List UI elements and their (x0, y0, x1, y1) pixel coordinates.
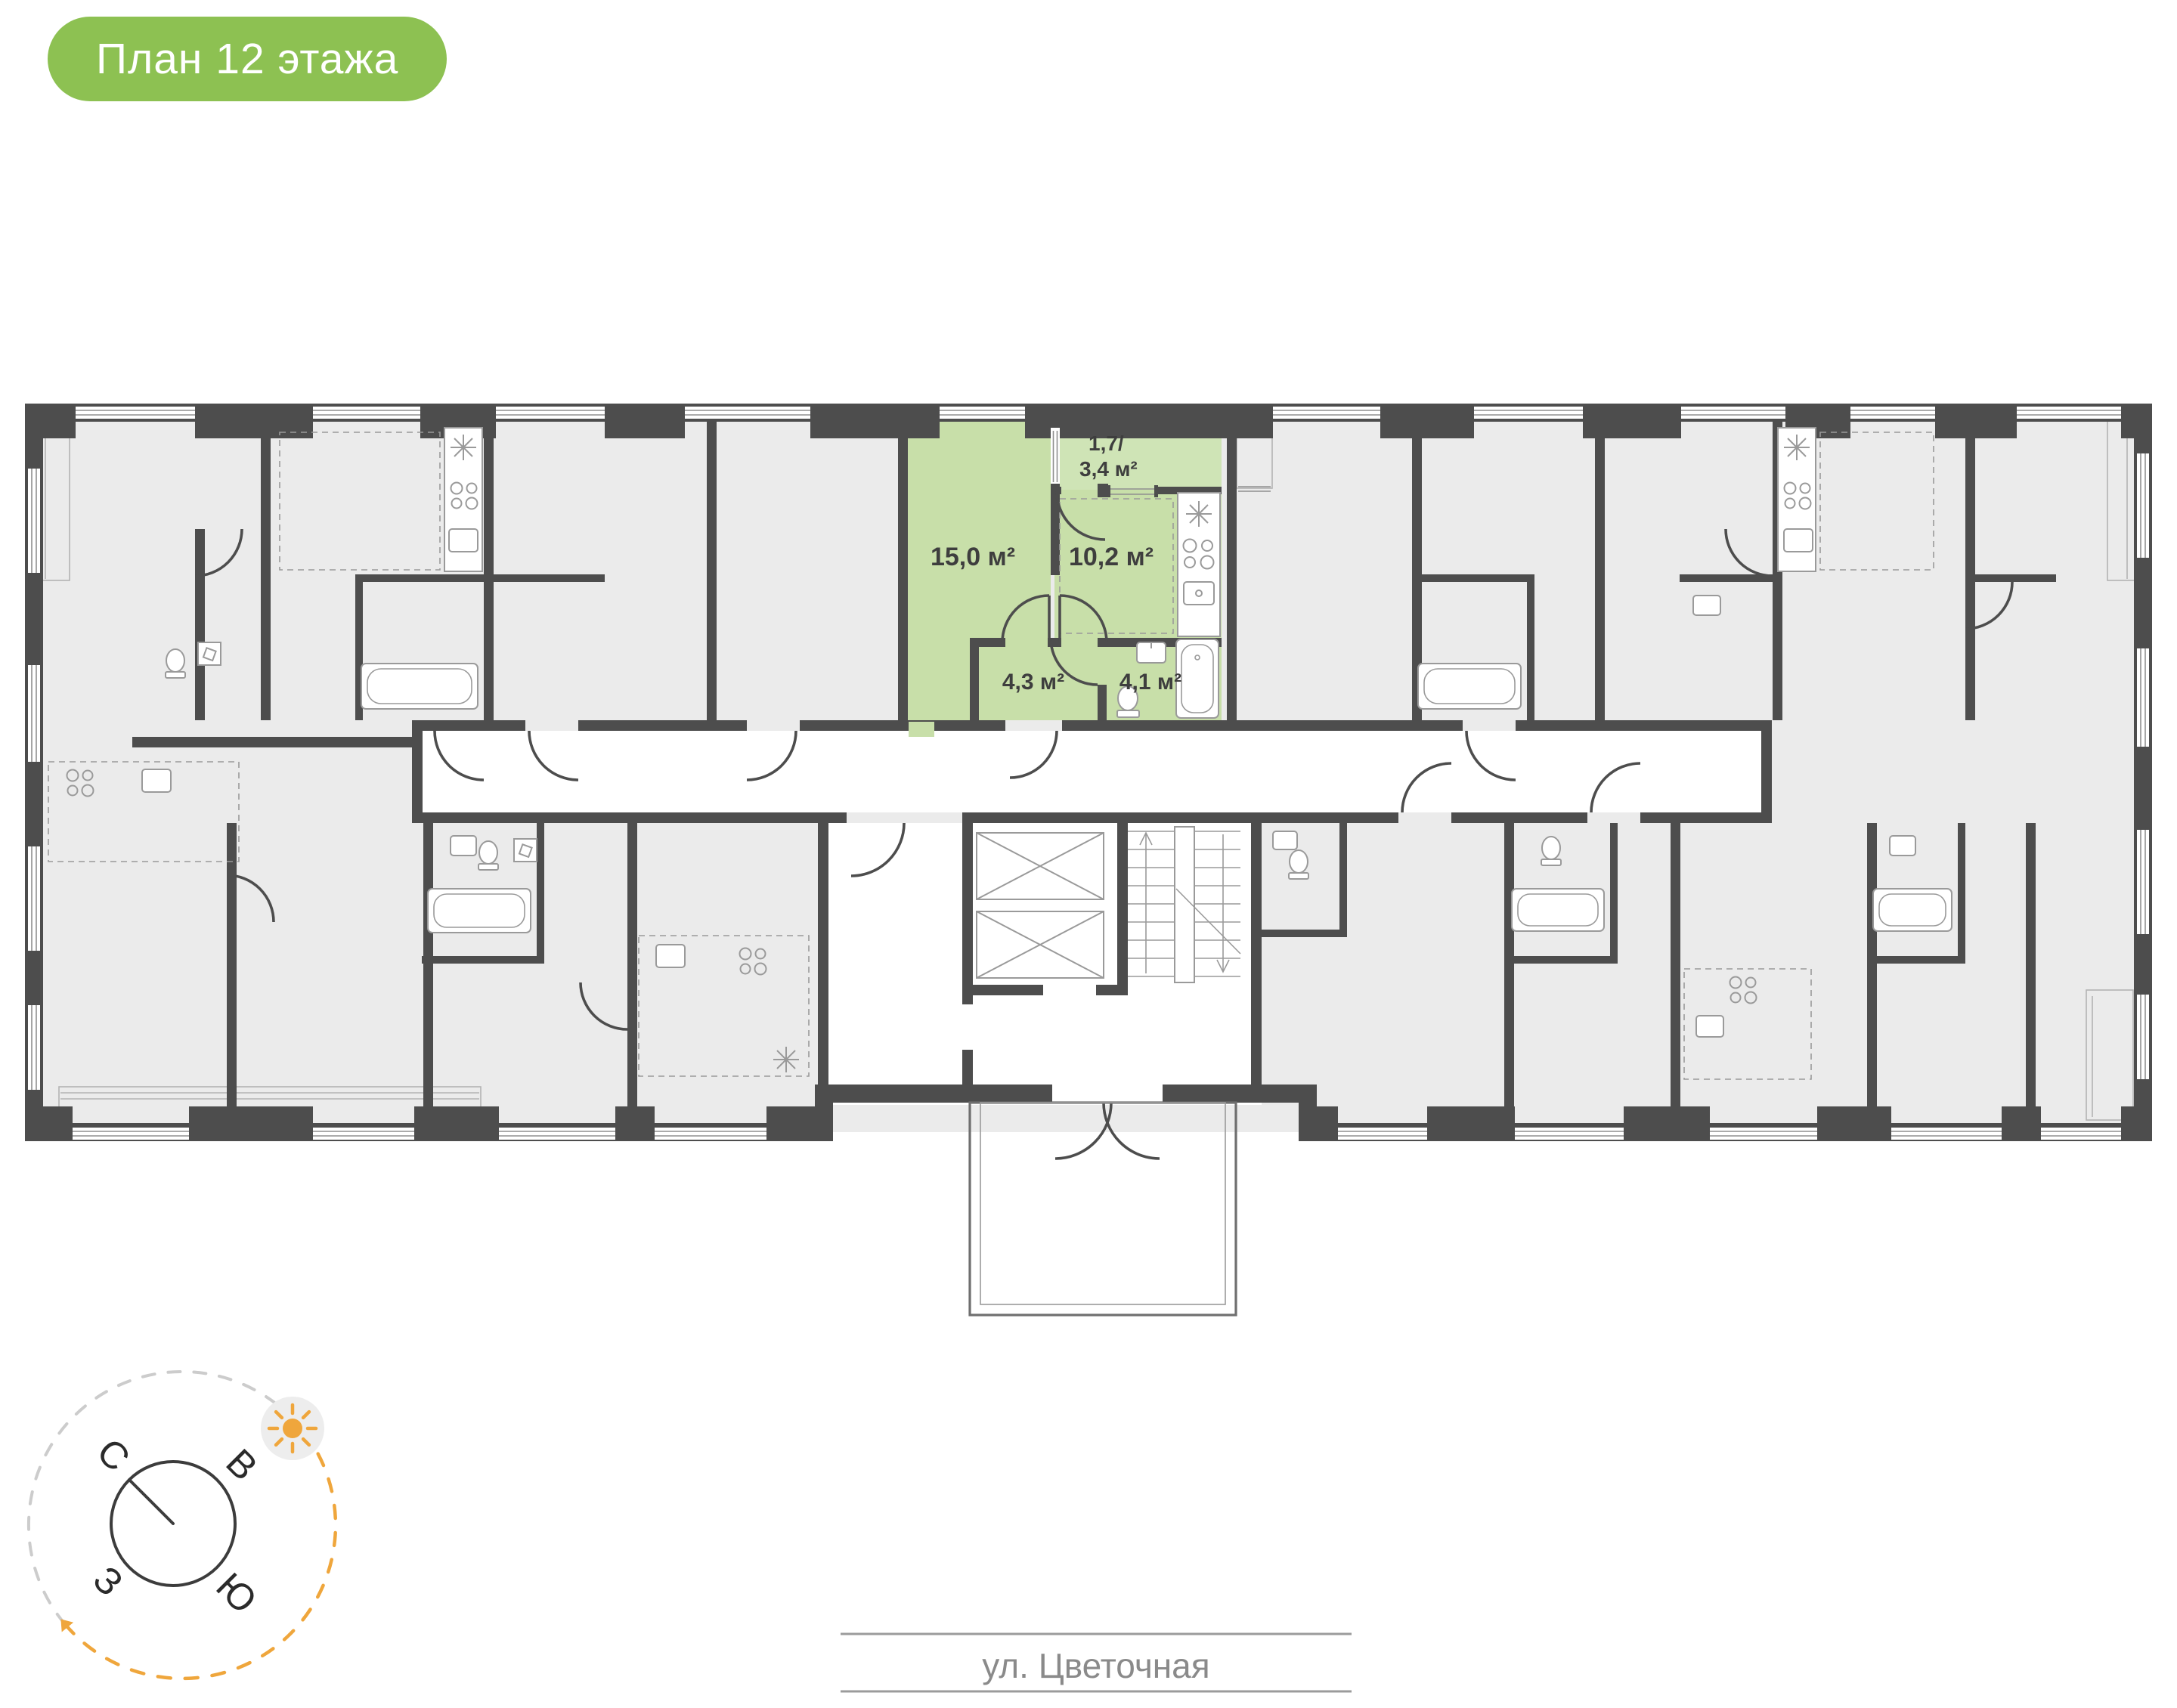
toilet (478, 841, 498, 870)
bathroom-area-label: 4,1 м² (1119, 670, 1181, 695)
apartment-wall-nib (909, 722, 934, 737)
sink (1693, 596, 1720, 615)
compass-east-label: В (218, 1440, 265, 1488)
bathtub (1873, 889, 1952, 931)
corridor (422, 731, 1761, 812)
sink (1273, 831, 1297, 849)
floor-plan-page: План 12 этажа (0, 0, 2177, 1708)
elevator-shaft (977, 911, 1104, 978)
bathtub (1418, 664, 1521, 709)
balcony-area-label-2: 3,4 м² (1079, 457, 1138, 481)
bathtub (428, 889, 531, 933)
compass-north-label: С (88, 1430, 138, 1479)
street-name: ул. Цветочная (982, 1646, 1209, 1685)
hallway-area-label: 4,3 м² (1002, 670, 1064, 695)
compass: С В З Ю (29, 1372, 336, 1679)
elevator-lobby (828, 823, 962, 1105)
compass-west-label: З (85, 1558, 132, 1604)
toilet (1289, 850, 1308, 879)
sink (1890, 836, 1915, 856)
floor-plan: 15,0 м² 10,2 м² 4,3 м² 4,1 м² 1,7/ 3,4 м… (0, 0, 2177, 1708)
balcony-area-label-1: 1,7/ (1088, 432, 1124, 455)
elevator-shaft (977, 833, 1104, 899)
street-label: ул. Цветочная (841, 1634, 1352, 1691)
toilet (1541, 837, 1561, 865)
washing-machine (198, 642, 221, 665)
compass-south-label: Ю (208, 1564, 265, 1621)
toilet (166, 649, 185, 678)
sun-icon (261, 1397, 324, 1460)
living-area-label: 15,0 м² (931, 543, 1015, 571)
bathtub (1512, 889, 1604, 931)
bathtub (361, 664, 478, 709)
kitchen-area-label: 10,2 м² (1069, 543, 1154, 571)
washing-machine (514, 839, 537, 862)
sink (451, 836, 476, 856)
